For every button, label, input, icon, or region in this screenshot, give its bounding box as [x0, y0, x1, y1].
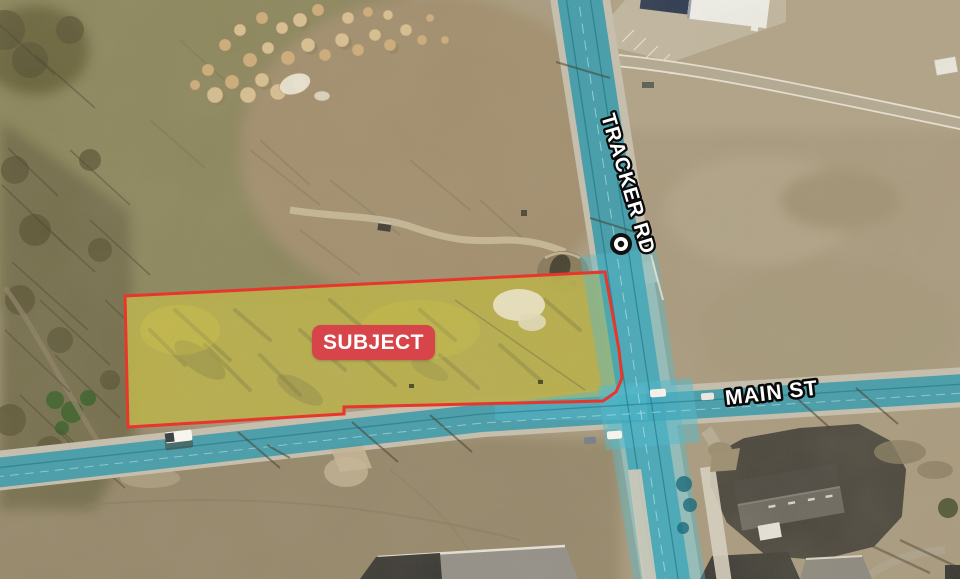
- subject-badge: SUBJECT: [312, 325, 435, 360]
- aerial-map: TRACKER RD MAIN ST SUBJECT: [0, 0, 960, 579]
- car-main-st: [163, 429, 193, 450]
- survey-marker: [610, 233, 632, 255]
- aerial-map-canvas: TRACKER RD MAIN ST: [0, 0, 960, 579]
- car-intersection-2: [701, 393, 714, 401]
- car-intersection-3: [607, 430, 623, 439]
- terrain-speckle: [0, 0, 960, 579]
- car-intersection-1: [650, 388, 667, 397]
- car-intersection-4: [584, 437, 596, 445]
